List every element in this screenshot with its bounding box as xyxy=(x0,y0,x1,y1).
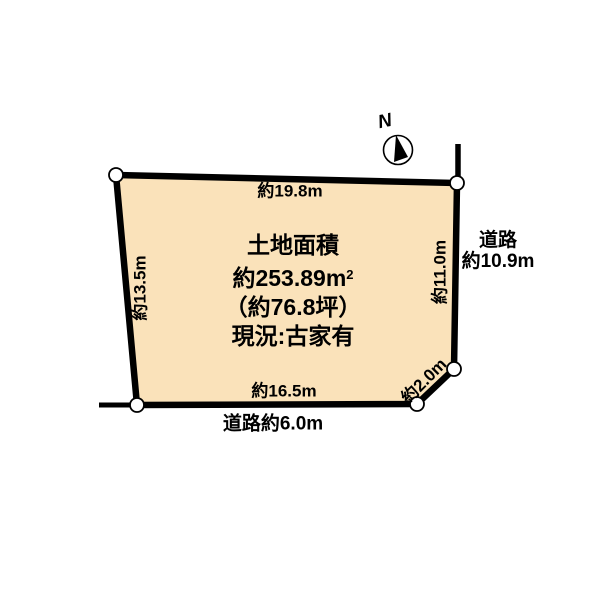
parcel-area-tsubo: （約76.8坪） xyxy=(225,293,362,322)
road-right-label-line1: 道路 xyxy=(462,230,535,251)
dimension-right: 約11.0m xyxy=(432,240,449,304)
road-right-label-line2: 約10.9m xyxy=(462,251,535,272)
dimension-left: 約13.5m xyxy=(132,255,149,320)
parcel-area-value-main: 約253.89m xyxy=(232,265,346,291)
north-compass-icon xyxy=(384,135,413,165)
corner-marker-top-right xyxy=(450,176,464,190)
parcel-area-title: 土地面積 xyxy=(225,231,362,260)
parcel-status: 現況:古家有 xyxy=(225,322,362,351)
road-right-label: 道路 約10.9m xyxy=(462,230,535,272)
dimension-bottom: 約16.5m xyxy=(251,383,316,400)
dimension-top: 約19.8m xyxy=(257,183,322,200)
parcel-info-block: 土地面積 約253.89m2 （約76.8坪） 現況:古家有 xyxy=(225,231,362,351)
corner-marker-top-left xyxy=(109,168,123,182)
parcel-area-value: 約253.89m2 xyxy=(225,260,362,293)
corner-marker-bottom-left xyxy=(130,398,144,412)
parcel-area-value-sup: 2 xyxy=(346,267,353,282)
land-plot-diagram: N 約19.8m 約13.5m 約11.0m 約16.5m 約2.0m 道路約6… xyxy=(0,0,600,600)
road-bottom-label: 道路約6.0m xyxy=(223,415,323,434)
